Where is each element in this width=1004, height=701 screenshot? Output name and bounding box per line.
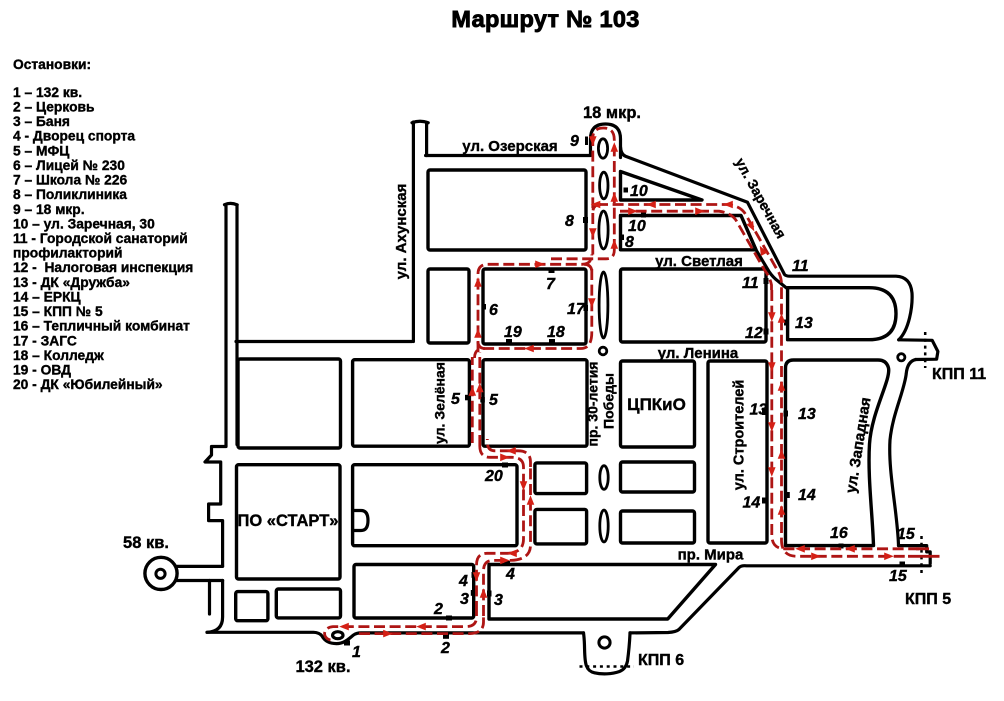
svg-text:5: 5 (451, 391, 461, 408)
svg-text:18 мкр.: 18 мкр. (583, 104, 641, 122)
svg-text:14: 14 (798, 487, 816, 504)
svg-text:1 – 132 кв.: 1 – 132 кв. (13, 85, 82, 100)
svg-text:17 - ЗАГС: 17 - ЗАГС (13, 333, 77, 348)
svg-text:19: 19 (504, 324, 522, 341)
svg-text:5: 5 (489, 392, 499, 409)
svg-text:13: 13 (795, 315, 813, 332)
svg-text:132 кв.: 132 кв. (295, 658, 350, 676)
svg-text:7: 7 (546, 276, 556, 293)
svg-text:14 – ЕРКЦ: 14 – ЕРКЦ (13, 290, 81, 305)
svg-text:20: 20 (484, 468, 503, 485)
svg-text:18 – Колледж: 18 – Колледж (13, 348, 104, 363)
svg-text:12 - Налоговая инспекция: 12 - Налоговая инспекция (13, 260, 193, 275)
svg-text:5 – МФЦ: 5 – МФЦ (13, 143, 69, 158)
svg-text:10: 10 (628, 218, 646, 235)
svg-text:Остановки:: Остановки: (13, 57, 91, 72)
svg-text:17: 17 (567, 301, 586, 318)
svg-text:16: 16 (830, 525, 848, 542)
svg-text:ул. Светлая: ул. Светлая (655, 253, 743, 270)
svg-text:15: 15 (889, 568, 908, 585)
svg-text:КПП 11: КПП 11 (932, 366, 986, 383)
svg-text:10 – ул. Заречная, 30: 10 – ул. Заречная, 30 (13, 216, 155, 231)
svg-text:ЦПКиО: ЦПКиО (627, 395, 686, 414)
svg-text:8 – Поликлиника: 8 – Поликлиника (13, 187, 127, 202)
svg-text:ул. Ленина: ул. Ленина (658, 345, 739, 362)
svg-text:ул. Зелёная: ул. Зелёная (432, 362, 448, 444)
svg-text:13: 13 (750, 402, 768, 419)
svg-text:6: 6 (489, 302, 498, 319)
svg-text:15 – КПП № 5: 15 – КПП № 5 (13, 304, 103, 319)
svg-text:Победы: Победы (601, 373, 617, 429)
svg-text:6 – Лицей № 230: 6 – Лицей № 230 (13, 158, 125, 173)
svg-text:4: 4 (458, 573, 468, 590)
svg-text:3: 3 (460, 591, 469, 608)
svg-text:КПП 6: КПП 6 (638, 652, 684, 669)
svg-text:10: 10 (630, 183, 648, 200)
svg-text:14: 14 (743, 495, 761, 512)
svg-text:3: 3 (494, 592, 503, 609)
svg-text:ул. Ахунская: ул. Ахунская (393, 184, 410, 280)
svg-text:2: 2 (433, 601, 443, 618)
svg-text:8: 8 (625, 234, 634, 251)
svg-text:12: 12 (745, 325, 763, 342)
svg-text:ул. Озерская: ул. Озерская (462, 138, 557, 155)
svg-text:20 - ДК «Юбилейный»: 20 - ДК «Юбилейный» (13, 377, 163, 392)
svg-text:профилакторий: профилакторий (13, 246, 122, 261)
svg-text:2: 2 (440, 640, 450, 657)
svg-text:ул. Строителей: ул. Строителей (732, 380, 748, 491)
svg-text:9: 9 (570, 133, 579, 150)
svg-text:пр. Мира: пр. Мира (678, 547, 744, 564)
svg-text:13: 13 (798, 406, 816, 423)
svg-text:2 – Церковь: 2 – Церковь (13, 99, 94, 114)
svg-text:11: 11 (742, 275, 759, 292)
svg-text:Маршрут № 103: Маршрут № 103 (451, 6, 639, 32)
svg-text:19 - ОВД: 19 - ОВД (13, 363, 71, 378)
svg-text:4 - Дворец спорта: 4 - Дворец спорта (13, 129, 135, 144)
svg-text:7 – Школа № 226: 7 – Школа № 226 (13, 173, 128, 188)
svg-text:КПП 5: КПП 5 (905, 591, 951, 608)
svg-text:4: 4 (505, 566, 515, 583)
svg-text:15: 15 (897, 526, 916, 543)
svg-text:9 – 18 мкр.: 9 – 18 мкр. (13, 202, 85, 217)
svg-text:16 – Тепличный комбинат: 16 – Тепличный комбинат (13, 319, 190, 334)
svg-text:58 кв.: 58 кв. (123, 534, 169, 552)
svg-text:11: 11 (792, 258, 809, 275)
svg-text:11 - Городской санаторий: 11 - Городской санаторий (13, 231, 188, 246)
svg-text:1: 1 (352, 644, 361, 661)
svg-text:18: 18 (547, 324, 565, 341)
svg-text:ПО «СТАРТ»: ПО «СТАРТ» (238, 512, 339, 530)
svg-text:3 – Баня: 3 – Баня (13, 114, 70, 129)
svg-text:8: 8 (565, 213, 574, 230)
svg-text:пр. 30-летия: пр. 30-летия (585, 362, 601, 447)
svg-text:13 - ДК «Дружба»: 13 - ДК «Дружба» (13, 275, 130, 290)
